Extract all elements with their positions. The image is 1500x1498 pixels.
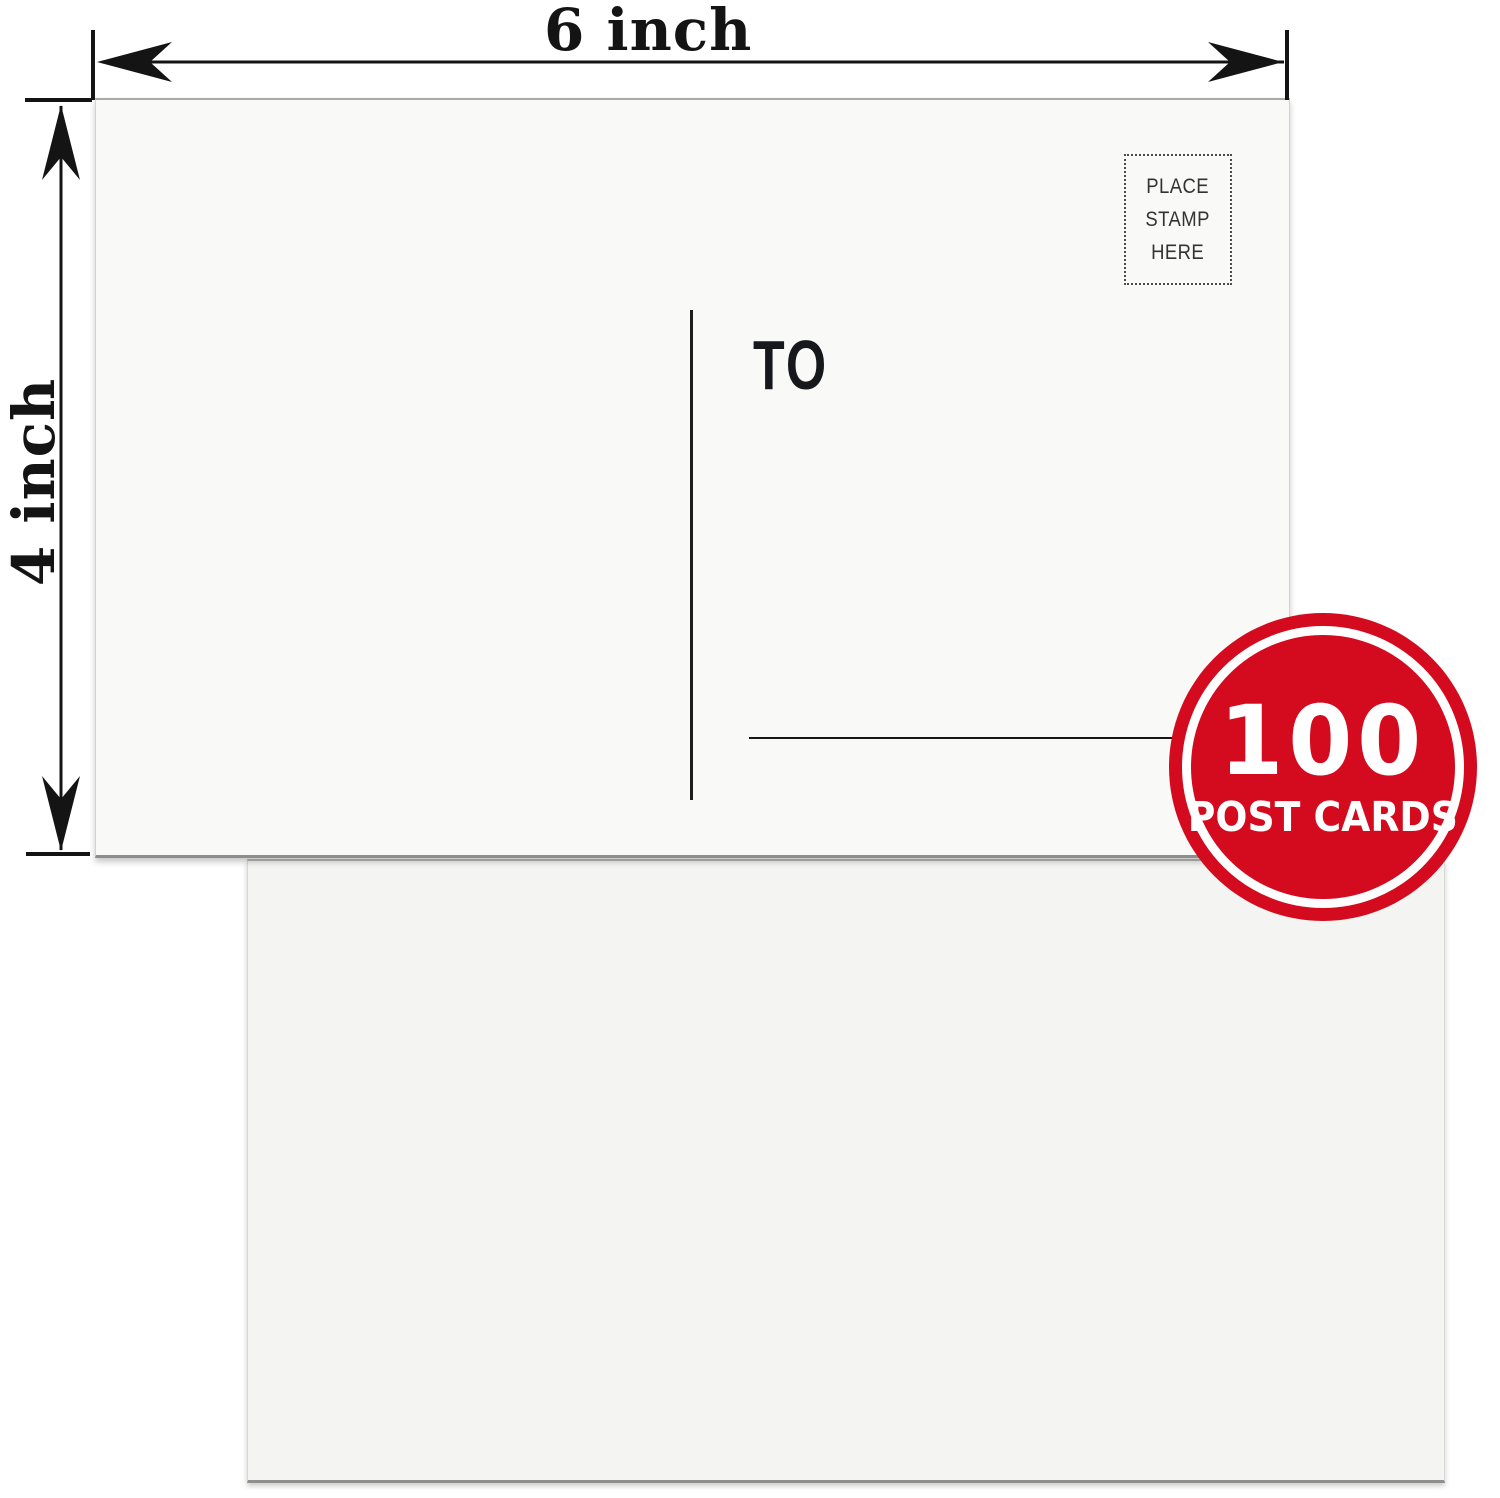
stamp-box-text: PLACE STAMP HERE (1146, 170, 1211, 269)
width-arrowhead-left (97, 42, 172, 82)
address-line (749, 737, 1211, 739)
count-badge-number: 100 (1220, 702, 1427, 781)
count-badge-content: 100 POST CARDS (1169, 613, 1477, 921)
height-arrowhead-up (42, 105, 80, 180)
postcard-address-side: PLACE STAMP HERE TO (95, 98, 1290, 858)
stamp-box: PLACE STAMP HERE (1124, 154, 1232, 285)
product-image: 6 inch 4 inch PLACE STAMP HERE TO 100 PO… (0, 0, 1500, 1498)
postcard-blank-side (247, 859, 1445, 1483)
width-arrowhead-right (1208, 42, 1283, 82)
height-arrowhead-down (42, 776, 80, 851)
divider-line (690, 310, 693, 800)
to-label: TO (753, 330, 828, 400)
count-badge-label: POST CARDS (1188, 797, 1458, 838)
width-dimension-label: 6 inch (544, 0, 744, 64)
height-dimension-label: 4 inch (0, 369, 60, 595)
count-badge: 100 POST CARDS (1169, 613, 1477, 921)
